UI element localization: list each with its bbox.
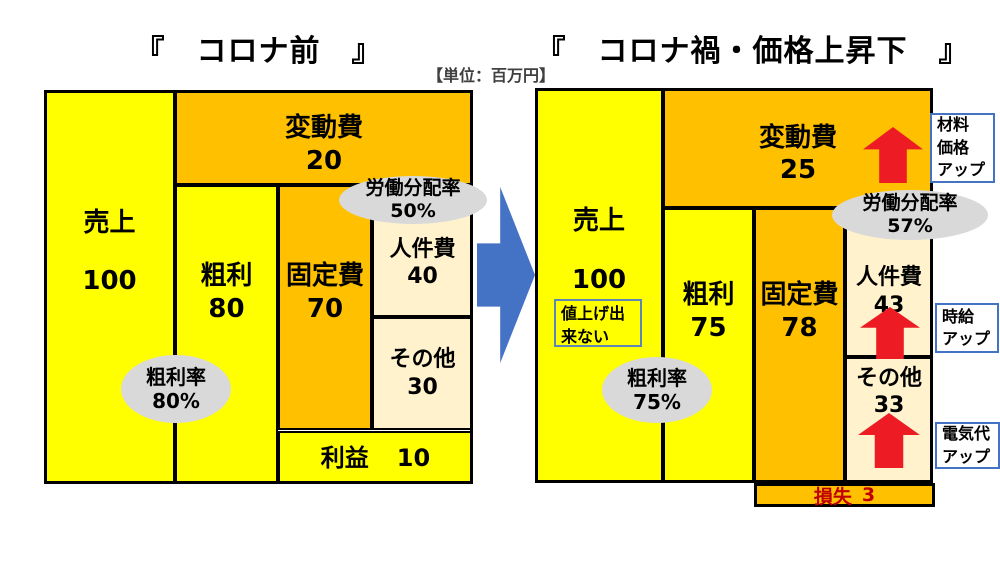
- other-cost-label: その他: [856, 365, 922, 393]
- sales-label: 売上: [573, 205, 625, 238]
- labor-cost-label: 人件費: [856, 264, 922, 292]
- sales-value: 100: [82, 265, 136, 298]
- profit-value: 10: [397, 443, 430, 473]
- variable-cost-label: 変動費: [285, 112, 363, 145]
- labor-share-badge: 労働分配率 50%: [339, 176, 487, 224]
- labor-share-value: 50%: [390, 200, 435, 223]
- labor-share-label: 労働分配率: [365, 177, 460, 200]
- gross-profit-box: 粗利 80: [175, 185, 278, 484]
- other-cost-box: その他 30: [372, 317, 473, 430]
- right-diagram-title: 『 コロナ禍・価格上昇下 』: [530, 26, 975, 70]
- callout-line: 材料: [937, 114, 988, 136]
- labor-share-label: 労働分配率: [862, 192, 957, 215]
- callout-line: 価格: [937, 137, 988, 159]
- labor-cost-label: 人件費: [389, 236, 455, 264]
- callout-line: アップ: [937, 159, 988, 181]
- gross-margin-value: 75%: [633, 390, 681, 414]
- gross-margin-badge: 粗利率 80%: [121, 355, 231, 423]
- fixed-cost-box: 固定費 70: [278, 185, 372, 430]
- hourly-wage-callout: 時給 アップ: [935, 303, 999, 353]
- fixed-cost-value: 70: [307, 293, 343, 326]
- labor-cost-value: 40: [407, 263, 438, 291]
- variable-cost-label: 変動費: [759, 122, 837, 155]
- fixed-cost-box: 固定費 78: [754, 208, 845, 483]
- fixed-cost-label: 固定費: [760, 279, 838, 312]
- loss-value: 3: [862, 484, 875, 506]
- callout-line: アップ: [942, 328, 992, 350]
- callout-line: アップ: [942, 446, 993, 468]
- gross-profit-label: 粗利: [200, 260, 252, 293]
- profit-label: 利益: [321, 443, 369, 473]
- labor-share-badge: 労働分配率 57%: [832, 190, 988, 240]
- fixed-cost-value: 78: [781, 312, 817, 345]
- sales-value: 100: [572, 264, 626, 297]
- price-freeze-note: 値上げ出来ない: [554, 299, 642, 347]
- transition-arrow-icon: [477, 187, 535, 363]
- other-cost-value: 30: [407, 374, 438, 402]
- gross-profit-box: 粗利 75: [663, 208, 754, 483]
- gross-profit-label: 粗利: [682, 279, 734, 312]
- sales-box: 売上 100: [44, 90, 175, 484]
- callout-line: 時給: [942, 306, 992, 328]
- variable-cost-value: 25: [780, 154, 816, 187]
- variable-cost-value: 20: [306, 145, 342, 178]
- electricity-cost-callout: 電気代 アップ: [935, 422, 1000, 469]
- profit-box: 利益 10: [278, 431, 473, 484]
- unit-label: 【単位：百万円】: [427, 62, 555, 86]
- gross-margin-label: 粗利率: [627, 366, 687, 390]
- gross-profit-value: 75: [690, 312, 726, 345]
- variable-cost-box: 変動費 20: [175, 90, 473, 185]
- gross-margin-label: 粗利率: [146, 365, 206, 389]
- gross-margin-value: 80%: [152, 389, 200, 413]
- loss-label: 損失: [814, 482, 852, 509]
- loss-box: 損失 3: [754, 483, 935, 507]
- gross-margin-badge: 粗利率 75%: [602, 357, 712, 423]
- sales-box: 売上 100: [535, 88, 663, 483]
- material-price-callout: 材料 価格 アップ: [930, 113, 995, 183]
- gross-profit-value: 80: [208, 293, 244, 326]
- callout-line: 電気代: [942, 423, 993, 445]
- left-diagram-title: 『 コロナ前 』: [44, 26, 473, 70]
- slide: { "unit_label": "【単位：百万円】", "colors": { …: [0, 0, 1000, 563]
- other-cost-label: その他: [389, 346, 455, 374]
- sales-label: 売上: [83, 207, 135, 240]
- fixed-cost-label: 固定費: [286, 260, 364, 293]
- labor-share-value: 57%: [887, 215, 932, 238]
